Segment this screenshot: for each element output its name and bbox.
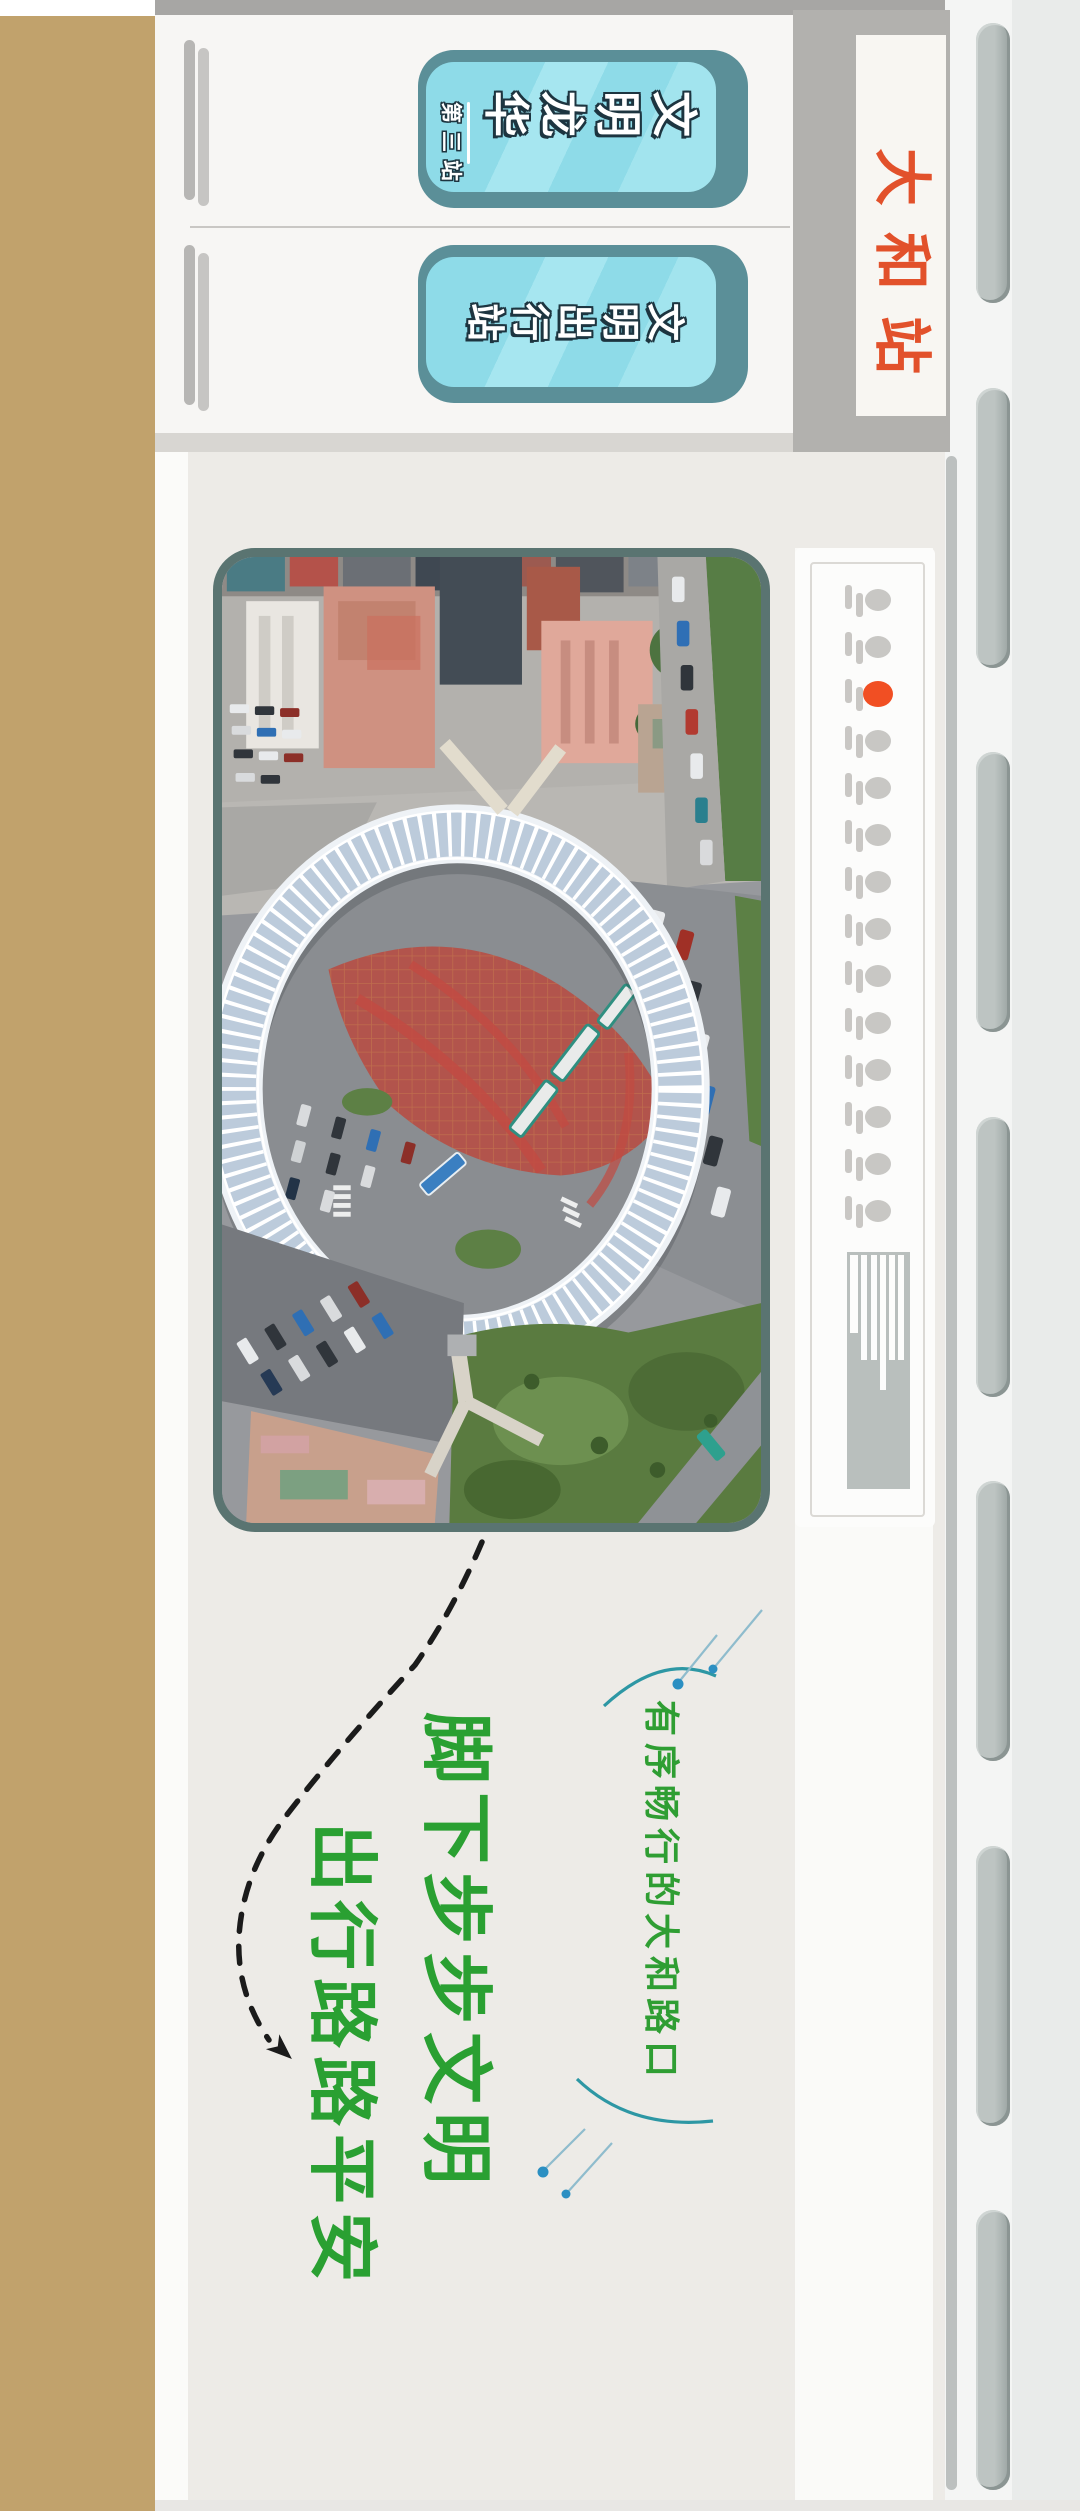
- series-badge-title: 文明龙华: [478, 86, 702, 142]
- binding-pill: [976, 2210, 1010, 2490]
- binding-pill: [976, 752, 1010, 1032]
- slogan-column-left: 出行路路平安: [302, 1818, 382, 2286]
- route-stop: [865, 918, 891, 940]
- clip-mark: [198, 48, 209, 206]
- binding-pill: [976, 23, 1010, 303]
- route-stop: [865, 824, 891, 846]
- route-stop: [865, 1200, 891, 1222]
- binding-pill: [976, 1117, 1010, 1397]
- aerial-photo-graphic: [222, 557, 761, 1523]
- page-edge-line: [946, 456, 957, 2490]
- binding-pill: [976, 1481, 1010, 1761]
- route-stop: [865, 636, 891, 658]
- series-badge-subdivider: [467, 102, 470, 164]
- route-stop: [865, 589, 891, 611]
- route-stop: [865, 1106, 891, 1128]
- route-stop: [865, 965, 891, 987]
- station-tag-block: 大和站: [793, 10, 950, 452]
- clip-mark: [184, 245, 195, 405]
- route-stop: [865, 730, 891, 752]
- station-tag-card: 大和站: [856, 35, 946, 416]
- binding-shade: [1012, 0, 1080, 2511]
- binding-pill: [976, 388, 1010, 668]
- route-stop-active: [863, 681, 893, 707]
- aerial-photo: [213, 548, 770, 1532]
- section-divider: [155, 433, 793, 452]
- tan-side-strip: [0, 16, 155, 2511]
- barcode-block: [847, 1252, 910, 1489]
- route-stop: [865, 1012, 891, 1034]
- header-divider: [190, 226, 790, 228]
- route-stop: [865, 1059, 891, 1081]
- series-badge-subtitle: 第三站: [437, 98, 464, 186]
- binding-pill: [976, 1846, 1010, 2126]
- route-stop: [865, 871, 891, 893]
- route-stop: [865, 777, 891, 799]
- route-stop: [865, 1153, 891, 1175]
- route-panel: [795, 548, 935, 1527]
- caption-column: 有序畅行的大和路口: [640, 1697, 683, 2080]
- clip-mark: [184, 40, 195, 200]
- slogan-column-right: 脚下步步文明: [415, 1708, 495, 2188]
- clip-mark: [198, 253, 209, 411]
- route-frame: [810, 562, 925, 1517]
- page-bottom-edge: [155, 2500, 1080, 2511]
- poster-canvas: 文明龙华 第三站 文明出行站 大和站: [0, 0, 1080, 2511]
- topic-badge-title: 文明出行站: [462, 298, 687, 346]
- station-tag-text: 大和站: [856, 135, 946, 387]
